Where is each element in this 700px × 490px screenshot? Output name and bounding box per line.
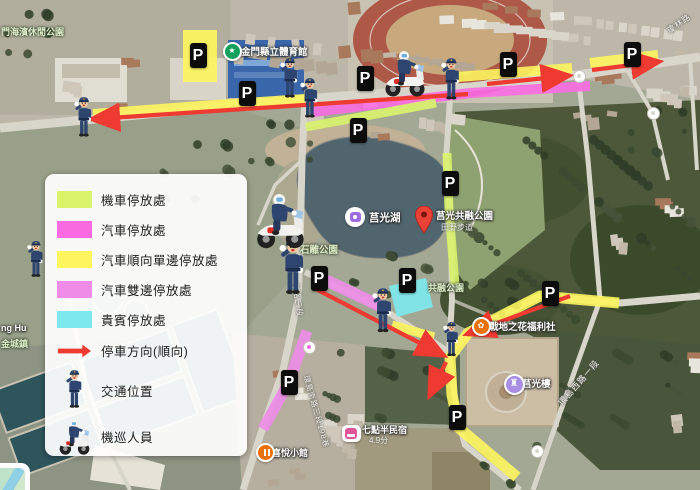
- traffic-officer-icon: [74, 96, 94, 140]
- map-layer-thumbnail: [0, 468, 25, 490]
- traffic-officer-icon: [372, 287, 394, 336]
- legend-item-label: 停車方向(順向): [101, 341, 188, 360]
- poi-label[interactable]: 戰地之花福利社: [489, 319, 556, 333]
- legend-swatch-car-icon: [57, 221, 92, 238]
- traffic-officer-icon: [441, 57, 462, 103]
- traffic-officer-icon: [27, 240, 45, 280]
- legend-item-label: 交通位置: [101, 381, 153, 400]
- poi-label[interactable]: 喜悅小館: [272, 446, 308, 459]
- poi-food-icon[interactable]: [256, 443, 275, 462]
- parking-sign: P: [190, 43, 207, 68]
- legend-item-7: 交通位置: [57, 367, 247, 413]
- poi-junction-icon: [573, 70, 586, 83]
- map-label: 田野步道: [441, 222, 473, 233]
- poi-label[interactable]: 莒光共融公園: [436, 208, 493, 222]
- parking-sign: P: [442, 171, 459, 196]
- poi-pin-icon[interactable]: [415, 206, 433, 234]
- legend-swatch-oneway-icon: [57, 251, 92, 268]
- legend-item-5: 貴賓停放處: [57, 304, 247, 334]
- traffic-officer-icon: [280, 57, 300, 101]
- legend-item-2: 汽車停放處: [57, 214, 247, 244]
- traffic-officer-icon: [443, 321, 460, 359]
- legend-item-4: 汽車雙邊停放處: [57, 274, 247, 304]
- poi-label[interactable]: 莒光樓: [522, 376, 551, 390]
- legend-item-6: 停車方向(順向): [57, 334, 247, 367]
- poi-junction-pink-icon: [303, 341, 316, 354]
- parking-sign: P: [357, 66, 374, 91]
- legend-item-8: 機巡人員: [57, 413, 247, 459]
- legend-item-label: 機巡人員: [101, 427, 153, 446]
- map-label: 金城鎮: [1, 337, 28, 350]
- legend-item-label: 貴賓停放處: [101, 310, 166, 329]
- legend-item-3: 汽車順向單邊停放處: [57, 244, 247, 274]
- legend-swatch-vip-icon: [57, 311, 92, 328]
- annotated-map[interactable]: 門海濱休閒公園金門縣立體育館莒光湖莒光共融公園田野步道石雕公園共融公園戰地之花福…: [0, 0, 700, 490]
- legend-item-label: 汽車雙邊停放處: [101, 280, 192, 299]
- poi-junction-icon: [647, 107, 660, 120]
- moto-patrol-icon: [253, 188, 308, 250]
- poi-gym-icon[interactable]: ★: [223, 42, 242, 61]
- parking-sign: P: [239, 81, 256, 106]
- parking-sign: P: [399, 268, 416, 293]
- legend-item-label: 汽車停放處: [101, 220, 166, 239]
- traffic-officer-icon: [300, 77, 320, 121]
- map-label: 環島西路一段: [555, 357, 601, 408]
- legend-officer-icon: [57, 369, 92, 411]
- parking-sign: P: [500, 52, 517, 77]
- poi-label[interactable]: 莒光湖: [369, 210, 401, 225]
- map-label: 共融公園: [428, 281, 464, 294]
- parking-sign: P: [624, 42, 641, 67]
- legend-item-label: 機車停放處: [101, 190, 166, 209]
- legend-direction-arrow-icon: [57, 343, 92, 359]
- map-label: 4.9分: [369, 435, 388, 446]
- moto-patrol-icon: [382, 46, 428, 98]
- map-label: 瓊林路: [665, 12, 693, 36]
- parking-sign: P: [542, 281, 559, 306]
- parking-sign: P: [449, 405, 466, 430]
- poi-flower-icon[interactable]: ✿: [472, 317, 491, 336]
- poi-label[interactable]: 金門縣立體育館: [241, 44, 308, 58]
- legend-item-1: 機車停放處: [57, 184, 247, 214]
- poi-junction-icon: [531, 445, 544, 458]
- legend-swatch-motorcycle-icon: [57, 191, 92, 208]
- parking-sign: P: [281, 370, 298, 395]
- legend-moto-patrol-icon: [57, 416, 92, 456]
- legend-panel: 機車停放處汽車停放處汽車順向單邊停放處汽車雙邊停放處貴賓停放處停車方向(順向) …: [45, 174, 247, 456]
- legend-swatch-both_sides-icon: [57, 281, 92, 298]
- legend-item-label: 汽車順向單邊停放處: [101, 250, 218, 269]
- parking-sign: P: [350, 118, 367, 143]
- parking-sign: P: [311, 266, 328, 291]
- poi-hotel-icon[interactable]: [342, 425, 361, 442]
- map-label: 環島南路三段198巷: [301, 374, 332, 449]
- poi-photo-icon[interactable]: [345, 207, 365, 227]
- map-label: 門海濱休閒公園: [1, 25, 64, 38]
- map-layer-toggle[interactable]: [0, 463, 30, 490]
- poi-tower-icon[interactable]: ♜: [504, 374, 525, 395]
- poi-label[interactable]: ng Hu: [1, 323, 27, 333]
